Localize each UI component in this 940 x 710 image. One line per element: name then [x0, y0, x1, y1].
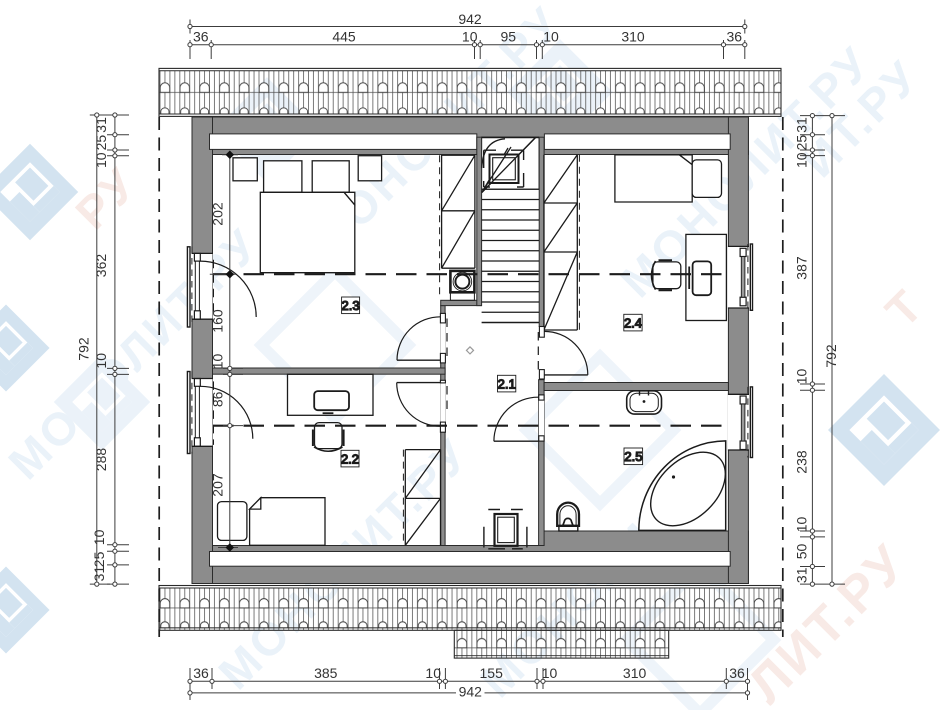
svg-text:207: 207 [209, 473, 225, 497]
svg-text:31: 31 [794, 567, 810, 583]
svg-text:10: 10 [209, 354, 225, 370]
svg-text:10: 10 [93, 152, 109, 168]
svg-text:2.3: 2.3 [342, 298, 360, 313]
svg-text:10: 10 [794, 517, 810, 533]
svg-text:942: 942 [458, 11, 482, 27]
svg-text:792: 792 [76, 337, 92, 361]
svg-text:10: 10 [794, 152, 810, 168]
svg-text:942: 942 [459, 683, 483, 699]
svg-text:31: 31 [93, 117, 109, 133]
svg-text:36: 36 [193, 29, 209, 45]
svg-text:86: 86 [209, 391, 225, 407]
svg-text:2.2: 2.2 [341, 452, 359, 467]
svg-text:288: 288 [93, 448, 109, 472]
svg-text:10: 10 [91, 529, 107, 545]
svg-text:362: 362 [93, 254, 109, 278]
svg-text:10: 10 [794, 369, 810, 385]
svg-text:36: 36 [193, 665, 209, 681]
svg-text:25: 25 [794, 135, 810, 151]
svg-text:160: 160 [209, 309, 225, 333]
svg-text:10: 10 [542, 665, 558, 681]
svg-text:238: 238 [794, 450, 810, 474]
svg-text:31: 31 [794, 117, 810, 133]
svg-text:445: 445 [332, 29, 356, 45]
svg-text:25: 25 [93, 135, 109, 151]
svg-text:2.1: 2.1 [498, 377, 516, 392]
svg-text:10: 10 [425, 665, 441, 681]
svg-text:2.5: 2.5 [624, 449, 642, 464]
svg-text:310: 310 [623, 665, 647, 681]
svg-text:792: 792 [823, 344, 839, 368]
svg-text:25: 25 [91, 551, 107, 567]
svg-text:36: 36 [727, 29, 743, 45]
svg-text:202: 202 [209, 202, 225, 226]
svg-text:10: 10 [462, 29, 478, 45]
svg-text:155: 155 [480, 665, 504, 681]
svg-text:31: 31 [91, 566, 107, 582]
svg-text:2.4: 2.4 [624, 316, 642, 331]
svg-text:310: 310 [621, 29, 645, 45]
svg-text:10: 10 [543, 29, 559, 45]
svg-text:36: 36 [729, 665, 745, 681]
svg-text:50: 50 [794, 544, 810, 560]
svg-text:10: 10 [93, 353, 109, 369]
svg-text:387: 387 [794, 256, 810, 280]
svg-text:385: 385 [314, 665, 338, 681]
svg-text:95: 95 [501, 29, 517, 45]
